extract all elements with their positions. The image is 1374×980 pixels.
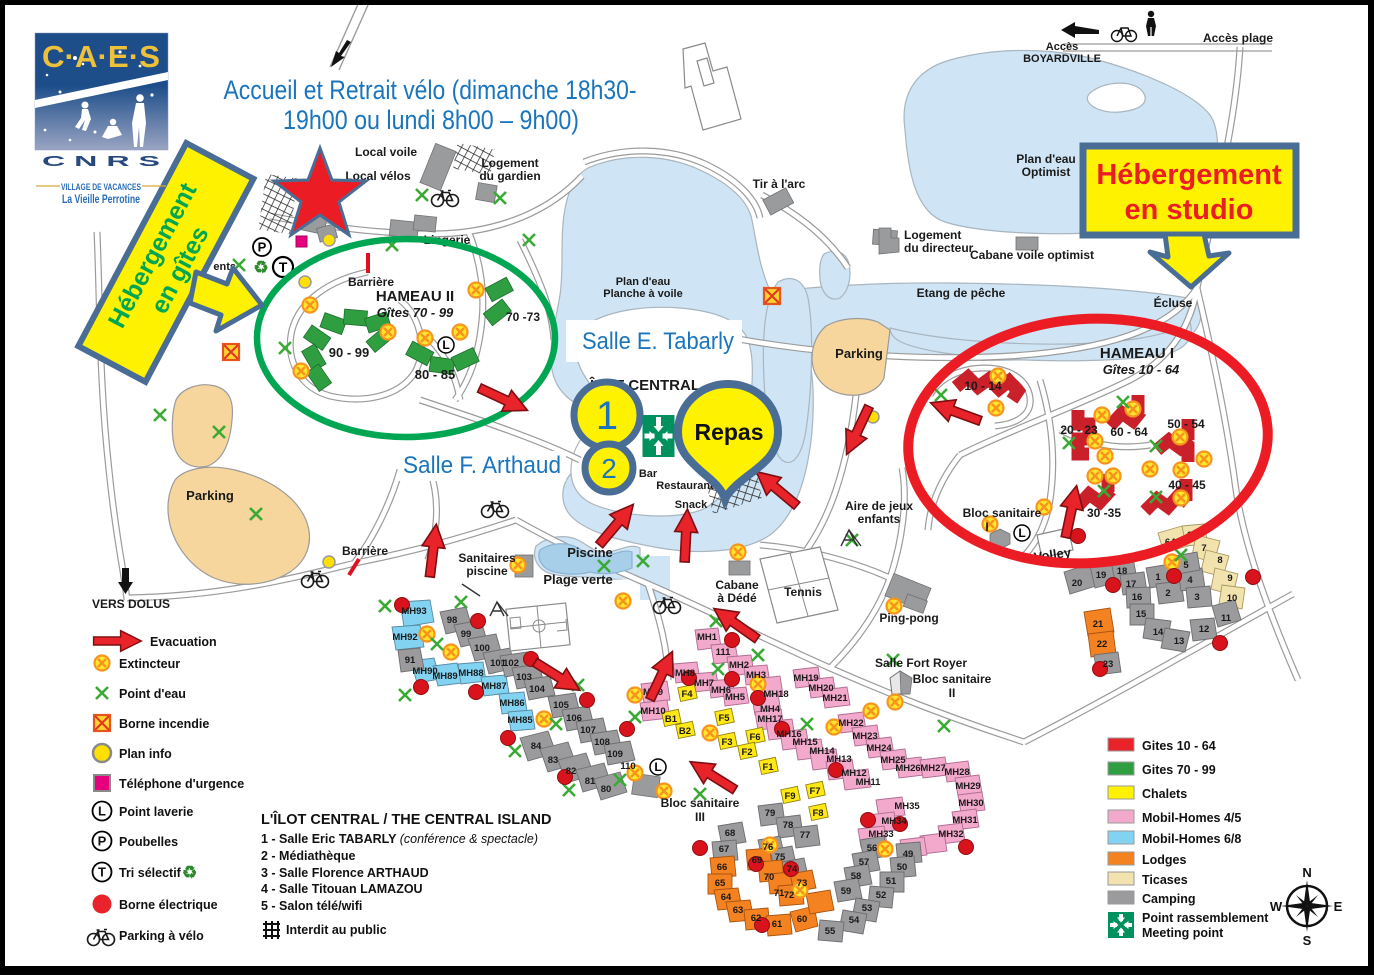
svg-text:4: 4 — [1187, 575, 1193, 586]
svg-text:Parking: Parking — [835, 346, 883, 361]
svg-text:Gîtes 10 - 64: Gîtes 10 - 64 — [1103, 362, 1180, 377]
svg-text:50 - 54: 50 - 54 — [1167, 417, 1205, 431]
svg-text:en studio: en studio — [1125, 194, 1254, 226]
svg-text:102: 102 — [503, 658, 519, 669]
svg-text:1 - Salle Eric TABARLY (confér: 1 - Salle Eric TABARLY (conférence & spe… — [261, 832, 538, 846]
svg-text:60 - 64: 60 - 64 — [1110, 425, 1148, 439]
svg-text:MH92: MH92 — [392, 632, 417, 643]
svg-text:80: 80 — [601, 784, 612, 795]
svg-text:Tir à l'arc: Tir à l'arc — [753, 177, 806, 191]
svg-text:MH21: MH21 — [822, 693, 848, 704]
svg-text:II: II — [949, 686, 956, 700]
svg-text:20 - 23: 20 - 23 — [1060, 423, 1098, 437]
svg-text:Tennis: Tennis — [784, 585, 822, 599]
svg-text:Tri sélectif: Tri sélectif — [119, 866, 182, 880]
svg-text:HAMEAU II: HAMEAU II — [376, 288, 454, 305]
svg-text:du gardien: du gardien — [479, 169, 540, 183]
svg-text:77: 77 — [800, 830, 811, 841]
svg-text:MH87: MH87 — [481, 681, 506, 692]
svg-text:MH88: MH88 — [458, 668, 483, 679]
svg-text:14: 14 — [1153, 627, 1164, 638]
svg-text:50: 50 — [897, 862, 908, 873]
svg-text:40 - 45: 40 - 45 — [1168, 478, 1206, 492]
svg-text:111: 111 — [716, 647, 732, 658]
svg-text:2 - Médiathèque: 2 - Médiathèque — [261, 849, 356, 863]
svg-text:60: 60 — [797, 914, 808, 925]
svg-text:L: L — [442, 338, 449, 352]
svg-text:1: 1 — [596, 394, 618, 438]
svg-text:19h00 ou lundi 8h00 – 9h00): 19h00 ou lundi 8h00 – 9h00) — [283, 105, 579, 135]
svg-text:100: 100 — [474, 643, 490, 654]
svg-text:7: 7 — [1201, 543, 1206, 554]
svg-text:L'ÎLOT CENTRAL / THE CENTRAL I: L'ÎLOT CENTRAL / THE CENTRAL ISLAND — [261, 810, 552, 828]
svg-text:1: 1 — [1155, 572, 1161, 583]
svg-text:10 - 14: 10 - 14 — [964, 379, 1002, 393]
svg-text:Restaurant: Restaurant — [656, 480, 714, 492]
svg-text:MH27: MH27 — [920, 763, 945, 774]
svg-text:Barrière: Barrière — [348, 275, 394, 289]
svg-text:Lodges: Lodges — [1142, 853, 1186, 867]
svg-text:8: 8 — [1217, 555, 1222, 566]
svg-text:BOYARDVILLE: BOYARDVILLE — [1023, 53, 1101, 65]
svg-text:F8: F8 — [812, 808, 823, 819]
svg-text:Téléphone d'urgence: Téléphone d'urgence — [119, 777, 244, 791]
svg-text:Salle Fort Royer: Salle Fort Royer — [875, 656, 967, 670]
svg-text:91: 91 — [405, 655, 416, 666]
svg-text:9: 9 — [1227, 573, 1232, 584]
svg-text:56: 56 — [867, 843, 878, 854]
svg-text:90 - 99: 90 - 99 — [329, 345, 369, 360]
svg-text:HAMEAU I: HAMEAU I — [1100, 345, 1174, 362]
svg-text:Cabane voile optimist: Cabane voile optimist — [970, 248, 1094, 262]
svg-text:F5: F5 — [718, 713, 730, 724]
svg-text:76: 76 — [763, 842, 774, 853]
svg-text:Piscine: Piscine — [567, 545, 613, 560]
svg-text:MH93: MH93 — [401, 606, 426, 617]
svg-text:59: 59 — [841, 886, 852, 897]
svg-text:Etang de pêche: Etang de pêche — [917, 286, 1006, 300]
svg-text:Accès: Accès — [1046, 41, 1078, 53]
svg-text:MH13: MH13 — [826, 754, 851, 765]
svg-text:75: 75 — [775, 852, 786, 863]
svg-text:B2: B2 — [679, 726, 691, 737]
svg-text:62: 62 — [751, 913, 762, 924]
svg-text:MH17: MH17 — [757, 714, 782, 725]
svg-text:Parking: Parking — [186, 488, 234, 503]
svg-text:67: 67 — [719, 844, 730, 855]
svg-text:84: 84 — [531, 741, 542, 752]
svg-text:108: 108 — [594, 737, 610, 748]
svg-text:Meeting point: Meeting point — [1142, 926, 1224, 940]
svg-text:MH31: MH31 — [952, 815, 978, 826]
svg-text:F2: F2 — [741, 747, 752, 758]
svg-text:MH32: MH32 — [938, 829, 963, 840]
svg-text:103: 103 — [516, 672, 532, 683]
svg-text:N: N — [1302, 865, 1311, 880]
svg-text:82: 82 — [566, 766, 577, 777]
svg-text:T: T — [279, 259, 288, 275]
svg-text:MH11: MH11 — [856, 777, 882, 788]
svg-text:L: L — [98, 804, 106, 819]
svg-text:104: 104 — [529, 684, 546, 695]
svg-text:MH10: MH10 — [640, 706, 665, 717]
svg-text:MH22: MH22 — [838, 718, 863, 729]
svg-text:Ticases: Ticases — [1142, 873, 1188, 887]
svg-text:Borne électrique: Borne électrique — [119, 898, 218, 912]
svg-text:Logement: Logement — [481, 156, 538, 170]
svg-text:Logement: Logement — [904, 228, 961, 242]
svg-text:68: 68 — [725, 828, 736, 839]
svg-text:57: 57 — [859, 857, 870, 868]
svg-text:T: T — [98, 865, 106, 880]
svg-text:17: 17 — [1126, 579, 1137, 590]
svg-text:66: 66 — [717, 862, 728, 873]
svg-text:F3: F3 — [721, 737, 732, 748]
svg-text:70: 70 — [764, 872, 775, 883]
svg-text:S: S — [1303, 933, 1312, 948]
svg-text:Bloc sanitaire: Bloc sanitaire — [963, 506, 1042, 520]
svg-text:58: 58 — [851, 871, 862, 882]
svg-text:III: III — [695, 810, 705, 824]
svg-text:5 - Salon télé/wifi: 5 - Salon télé/wifi — [261, 899, 362, 913]
svg-text:P: P — [98, 834, 107, 849]
svg-text:Cabane: Cabane — [715, 578, 759, 592]
svg-text:Plage verte: Plage verte — [543, 572, 612, 587]
svg-text:C N R S: C N R S — [42, 153, 160, 170]
svg-text:Écluse: Écluse — [1154, 295, 1193, 310]
svg-text:55: 55 — [825, 926, 836, 937]
svg-text:53: 53 — [862, 903, 873, 914]
svg-text:49: 49 — [903, 849, 914, 860]
svg-text:P: P — [258, 240, 267, 255]
svg-text:106: 106 — [566, 713, 582, 724]
svg-text:W: W — [1270, 899, 1283, 914]
svg-text:Sanitaires: Sanitaires — [458, 551, 516, 565]
svg-text:52: 52 — [876, 890, 887, 901]
svg-text:19: 19 — [1096, 570, 1107, 581]
svg-text:MH5: MH5 — [725, 692, 746, 703]
svg-text:Camping: Camping — [1142, 892, 1195, 906]
svg-text:MH86: MH86 — [499, 698, 524, 709]
svg-text:22: 22 — [1097, 639, 1108, 650]
svg-text:L: L — [654, 760, 661, 774]
svg-text:MH8: MH8 — [675, 668, 695, 679]
svg-text:Accès plage: Accès plage — [1203, 31, 1273, 45]
svg-text:Ping-pong: Ping-pong — [879, 611, 938, 625]
svg-text:F1: F1 — [762, 762, 774, 773]
svg-text:Accueil et Retrait vélo (diman: Accueil et Retrait vélo (dimanche 18h30- — [224, 75, 637, 105]
svg-text:MH89: MH89 — [432, 671, 457, 682]
svg-text:72: 72 — [784, 890, 795, 901]
svg-text:MH3: MH3 — [746, 670, 766, 681]
svg-text:MH26: MH26 — [895, 763, 920, 774]
svg-text:MH18: MH18 — [763, 689, 788, 700]
svg-text:30 -35: 30 -35 — [1087, 506, 1121, 520]
svg-text:Bloc sanitaire: Bloc sanitaire — [661, 796, 740, 810]
svg-text:C·A·E·S: C·A·E·S — [42, 39, 160, 74]
svg-text:L: L — [1018, 526, 1025, 540]
svg-text:Local voile: Local voile — [355, 145, 417, 159]
svg-text:Barrière: Barrière — [342, 544, 388, 558]
svg-text:Borne incendie: Borne incendie — [119, 717, 209, 731]
svg-text:I: I — [985, 520, 988, 534]
svg-text:Gites 10 - 64: Gites 10 - 64 — [1142, 739, 1216, 753]
svg-text:Aire de jeux: Aire de jeux — [845, 499, 913, 513]
svg-text:F9: F9 — [784, 791, 795, 802]
svg-text:81: 81 — [585, 776, 596, 787]
svg-text:MH34: MH34 — [881, 816, 907, 827]
svg-text:Plan info: Plan info — [119, 747, 172, 761]
svg-text:B1: B1 — [665, 714, 678, 725]
svg-text:16: 16 — [1132, 592, 1143, 603]
svg-text:MH33: MH33 — [868, 829, 893, 840]
svg-text:74: 74 — [787, 864, 798, 875]
svg-text:MH30: MH30 — [958, 798, 983, 809]
svg-text:12: 12 — [1199, 624, 1210, 635]
svg-text:105: 105 — [553, 700, 570, 711]
svg-text:Point d'eau: Point d'eau — [119, 687, 186, 701]
svg-text:2: 2 — [601, 453, 617, 484]
svg-text:à Dédé: à Dédé — [717, 591, 757, 605]
svg-text:Evacuation: Evacuation — [150, 635, 217, 649]
svg-text:MH24: MH24 — [866, 743, 892, 754]
svg-text:MH1: MH1 — [697, 632, 718, 643]
svg-text:110: 110 — [620, 761, 635, 772]
svg-text:MH28: MH28 — [944, 767, 969, 778]
svg-text:enfants: enfants — [858, 512, 901, 526]
svg-text:78: 78 — [783, 820, 794, 831]
svg-text:Point laverie: Point laverie — [119, 805, 193, 819]
svg-text:Bar: Bar — [639, 468, 658, 480]
svg-text:Repas: Repas — [694, 419, 763, 445]
svg-text:MH23: MH23 — [852, 731, 877, 742]
svg-text:F7: F7 — [809, 786, 820, 797]
svg-text:Mobil-Homes 6/8: Mobil-Homes 6/8 — [1142, 832, 1241, 846]
svg-text:E: E — [1334, 899, 1343, 914]
svg-text:Plan d'eau: Plan d'eau — [1016, 152, 1076, 166]
svg-text:Snack: Snack — [675, 499, 708, 511]
svg-text:VILLAGE DE VACANCES: VILLAGE DE VACANCES — [61, 182, 141, 193]
svg-text:15: 15 — [1136, 609, 1147, 620]
svg-text:Poubelles: Poubelles — [119, 835, 178, 849]
svg-text:♻: ♻ — [253, 258, 268, 277]
svg-text:11: 11 — [1221, 613, 1232, 624]
svg-text:23: 23 — [1103, 659, 1114, 670]
svg-text:10: 10 — [1227, 593, 1238, 604]
svg-text:Chalets: Chalets — [1142, 787, 1187, 801]
svg-text:Interdit au public: Interdit au public — [286, 923, 387, 937]
svg-text:VERS DOLUS: VERS DOLUS — [92, 597, 170, 611]
svg-text:Bloc sanitaire: Bloc sanitaire — [913, 672, 992, 686]
svg-text:73: 73 — [797, 878, 808, 889]
svg-text:La Vieille Perrotine: La Vieille Perrotine — [62, 194, 140, 206]
svg-text:MH85: MH85 — [507, 715, 533, 726]
svg-text:51: 51 — [886, 876, 897, 887]
svg-text:61: 61 — [772, 919, 783, 930]
svg-text:3: 3 — [1194, 592, 1199, 603]
svg-text:Extincteur: Extincteur — [119, 657, 180, 671]
svg-text:13: 13 — [1174, 636, 1185, 647]
svg-text:Parking à vélo: Parking à vélo — [119, 929, 204, 943]
svg-text:F4: F4 — [681, 689, 693, 700]
svg-text:80 - 85: 80 - 85 — [415, 367, 455, 382]
svg-text:Salle E. Tabarly: Salle E. Tabarly — [582, 328, 734, 355]
svg-text:70 -73: 70 -73 — [506, 310, 540, 324]
svg-text:F6: F6 — [749, 732, 760, 743]
svg-text:65: 65 — [715, 878, 726, 889]
svg-text:piscine: piscine — [466, 564, 508, 578]
svg-text:2: 2 — [1165, 588, 1170, 599]
svg-text:Gîtes 70 - 99: Gîtes 70 - 99 — [377, 305, 454, 320]
svg-text:18: 18 — [1117, 566, 1128, 577]
svg-text:♻: ♻ — [182, 863, 197, 882]
svg-text:MH35: MH35 — [894, 801, 920, 812]
svg-text:21: 21 — [1093, 619, 1104, 630]
svg-text:Hébergement: Hébergement — [1096, 159, 1282, 191]
svg-text:Point rassemblement: Point rassemblement — [1142, 911, 1269, 925]
svg-text:Planche à voile: Planche à voile — [603, 288, 682, 300]
svg-text:5: 5 — [1183, 560, 1189, 571]
svg-text:du directeur: du directeur — [904, 241, 974, 255]
svg-text:99: 99 — [461, 629, 472, 640]
svg-text:54: 54 — [849, 915, 860, 926]
svg-text:Plan d'eau: Plan d'eau — [616, 276, 671, 288]
svg-text:Salle F. Arthaud: Salle F. Arthaud — [403, 452, 561, 479]
svg-text:20: 20 — [1072, 578, 1083, 589]
svg-text:83: 83 — [548, 755, 559, 766]
svg-text:Gites 70 - 99: Gites 70 - 99 — [1142, 763, 1216, 777]
svg-text:98: 98 — [447, 615, 458, 626]
svg-text:Mobil-Homes 4/5: Mobil-Homes 4/5 — [1142, 811, 1241, 825]
svg-text:63: 63 — [733, 905, 744, 916]
svg-text:3 - Salle Florence ARTHAUD: 3 - Salle Florence ARTHAUD — [261, 866, 429, 880]
svg-text:64: 64 — [721, 892, 732, 903]
svg-text:107: 107 — [580, 725, 596, 736]
svg-text:109: 109 — [607, 749, 623, 760]
svg-text:Optimist: Optimist — [1022, 165, 1071, 179]
svg-text:MH29: MH29 — [955, 781, 980, 792]
svg-text:4 - Salle Titouan LAMAZOU: 4 - Salle Titouan LAMAZOU — [261, 882, 423, 896]
svg-text:69: 69 — [752, 855, 763, 866]
svg-text:79: 79 — [765, 808, 776, 819]
